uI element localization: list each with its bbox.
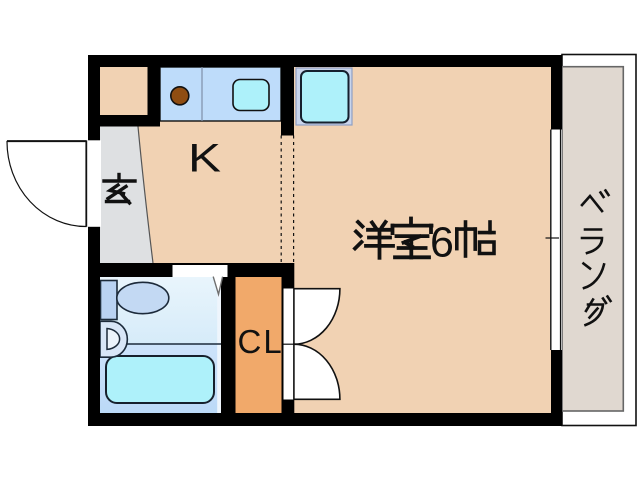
svg-text:6: 6 — [430, 219, 454, 267]
svg-text:CL: CL — [238, 323, 284, 360]
svg-text:K: K — [188, 137, 221, 181]
